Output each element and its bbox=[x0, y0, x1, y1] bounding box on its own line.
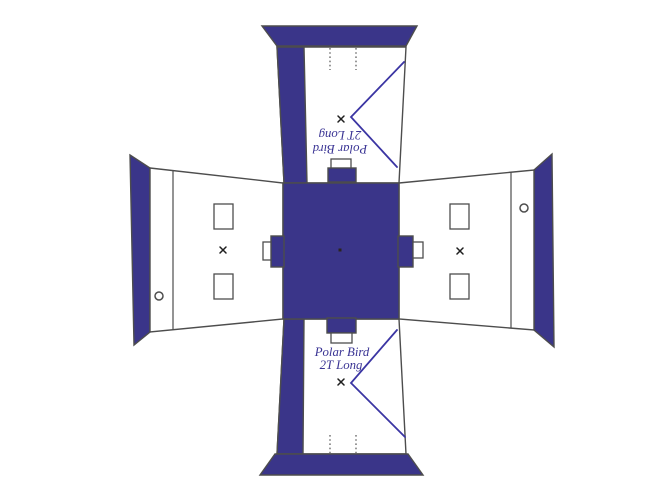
left-window-patch bbox=[214, 274, 233, 299]
top-flap-side-stripe bbox=[277, 47, 307, 183]
brand-label-line2: 2T Long bbox=[318, 128, 361, 142]
right-window-patch bbox=[450, 274, 469, 299]
left-end-trapezoid bbox=[130, 155, 150, 345]
tab-strap bbox=[271, 236, 284, 267]
bottom-flap-side-stripe bbox=[277, 319, 304, 454]
grommet-hole bbox=[520, 204, 528, 212]
left-flap-group bbox=[130, 155, 283, 345]
brand-label-line1: Polar Bird bbox=[312, 142, 368, 156]
tab-bottom bbox=[327, 318, 356, 343]
bottom-end-trapezoid bbox=[260, 454, 423, 475]
tab-slot bbox=[331, 333, 352, 343]
brand-label-top: Polar Bird 2T Long bbox=[312, 128, 368, 156]
left-window-patch bbox=[214, 204, 233, 229]
brand-label-line1: Polar Bird bbox=[314, 345, 370, 359]
center-point-mark bbox=[339, 249, 342, 252]
tab-strap bbox=[328, 168, 356, 182]
right-window-patch bbox=[450, 204, 469, 229]
brand-label-line2: 2T Long bbox=[320, 358, 363, 372]
top-end-trapezoid bbox=[262, 26, 417, 46]
tab-strap bbox=[327, 318, 356, 333]
tent-pattern-diagram: Polar Bird 2T Long Polar Bird 2T Long bbox=[0, 0, 667, 500]
tab-slot bbox=[413, 242, 423, 258]
grommet-hole bbox=[155, 292, 163, 300]
tent-pattern-canvas: Polar Bird 2T Long Polar Bird 2T Long bbox=[0, 0, 667, 500]
center-floor-group bbox=[283, 183, 399, 319]
right-end-trapezoid bbox=[534, 154, 554, 347]
brand-label-bottom: Polar Bird 2T Long bbox=[314, 345, 370, 372]
tab-strap bbox=[398, 236, 413, 267]
